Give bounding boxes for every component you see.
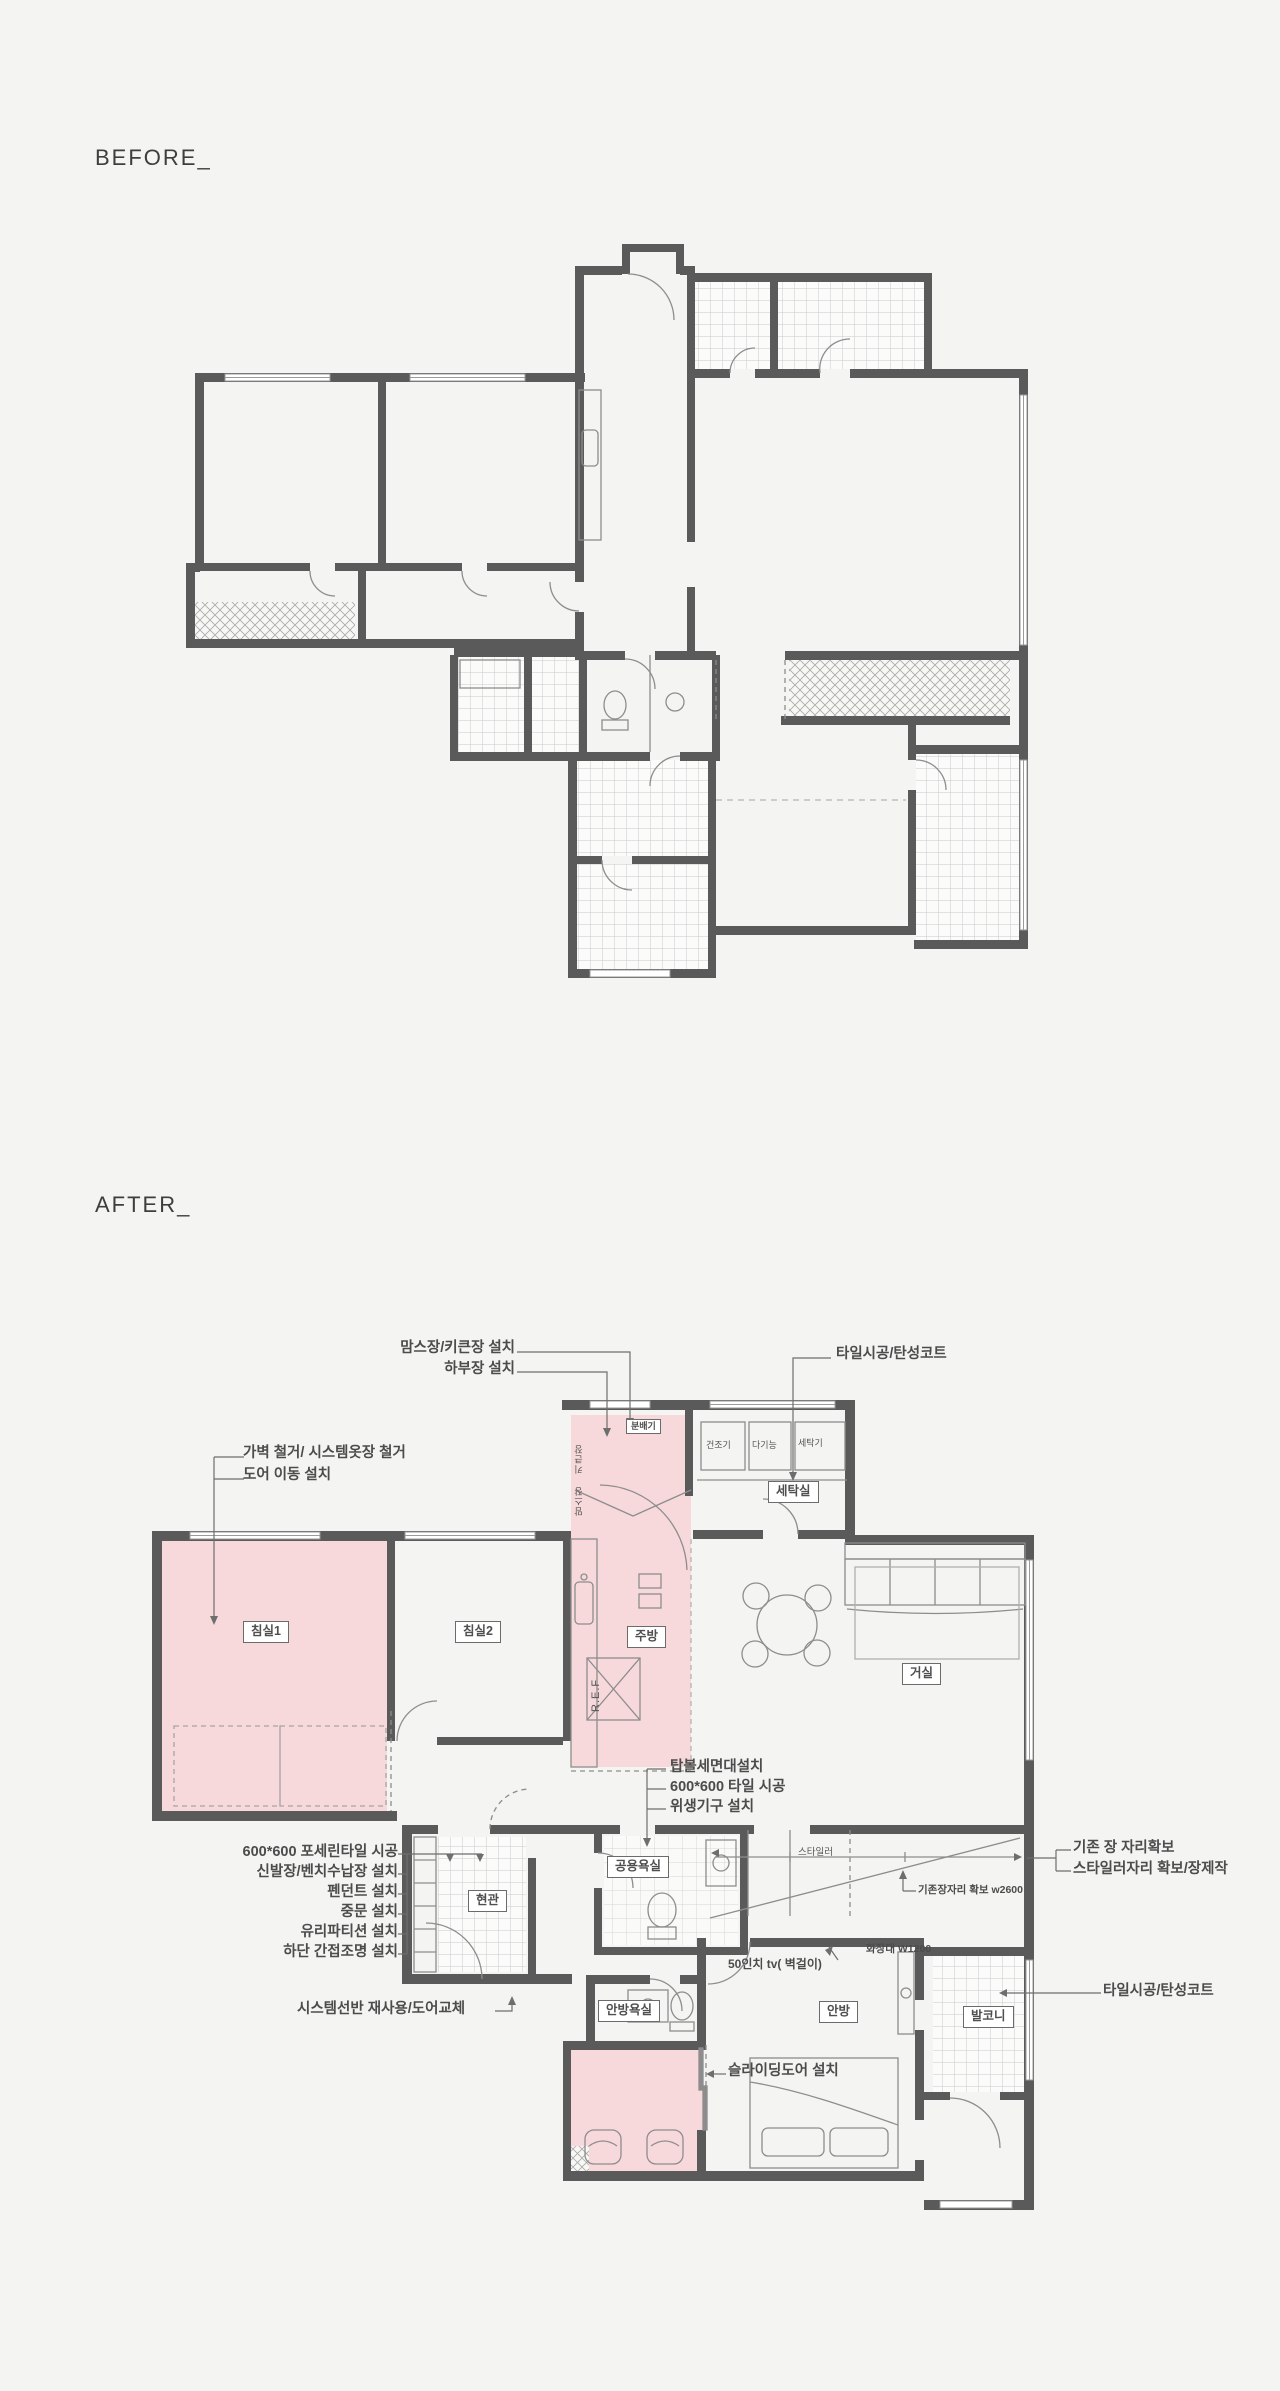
room-label-balcony: 발코니 [963,2006,1014,2028]
before-title: BEFORE_ [95,145,212,171]
ann-bath3: 위생기구 설치 [670,1800,754,1816]
room-label-bedroom1: 침실1 [243,1621,289,1643]
ann-bedroom-demo2: 도어 이동 설치 [243,1468,331,1484]
ann-laundry-tile: 타일시공/탄성코트 [836,1347,947,1363]
tall-cabinet-label: 키큰장 [572,1444,585,1474]
dryer-label: 건조기 [706,1438,731,1451]
moms-cabinet-label: 맘스장 [572,1486,585,1516]
before-floorplan [170,240,1050,990]
room-label-shared-bath: 공용욕실 [607,1856,669,1878]
room-label-living: 거실 [902,1663,941,1685]
room-label-laundry: 세탁실 [768,1481,819,1503]
ann-balcony-tile: 타일시공/탄성코트 [1103,1984,1214,2000]
after-title: AFTER_ [95,1192,191,1218]
before-tiled-areas [195,282,1019,969]
ann-tv: 50인치 tv( 벽걸이) [728,1958,822,1971]
ann-pantry-lower: 하부장 설치 [444,1362,515,1378]
ann-closet-keep2: 스타일러자리 확보/장제작 [1073,1862,1228,1878]
ann-shelf-reuse: 시스템선반 재사용/도어교체 [297,2002,465,2018]
styler-label: 스타일러 [798,1844,833,1858]
ann-bath1: 탑볼세면대설치 [670,1760,763,1776]
aux-unit-label: 다기능 [752,1438,777,1451]
ann-sliding-door: 슬라이딩도어 설치 [728,2064,839,2080]
room-label-master-bedroom: 안방 [819,2001,858,2023]
ann-entry3: 펜던트 설치 [327,1885,398,1901]
ann-bedroom-demo1: 가벽 철거/ 시스템옷장 철거 [243,1446,406,1462]
ann-entry4: 중문 설치 [341,1905,398,1921]
ann-entry1: 600*600 포세린타일 시공 [243,1845,398,1861]
fridge-label: R.E.F [590,1679,602,1712]
room-label-bedroom2: 침실2 [455,1621,501,1643]
ann-dresser: 화장대 W1200 [866,1944,931,1956]
washer-label: 세탁기 [798,1436,823,1449]
after-highlight-areas [157,1415,703,2177]
room-label-master-bath: 안방욕실 [598,2000,660,2022]
room-label-kitchen: 주방 [627,1626,666,1648]
ann-entry6: 하단 간접조명 설치 [283,1945,398,1961]
room-label-entrance: 현관 [468,1890,507,1912]
room-label-distributor: 분배기 [626,1419,661,1434]
ann-bath2: 600*600 타일 시공 [670,1780,785,1796]
ann-entry2: 신발장/벤치수납장 설치 [257,1865,398,1881]
floorplan-comparison-page: BEFORE_ AFTER_ [0,0,1280,2391]
ann-entry5: 유리파티션 설치 [301,1925,398,1941]
ann-pantry-upper: 맘스장/키큰장 설치 [400,1341,515,1357]
ann-closet-keep1: 기존 장 자리확보 [1073,1841,1174,1857]
ann-closet-dim: 기존장자리 확보 w2600 [918,1885,1023,1897]
